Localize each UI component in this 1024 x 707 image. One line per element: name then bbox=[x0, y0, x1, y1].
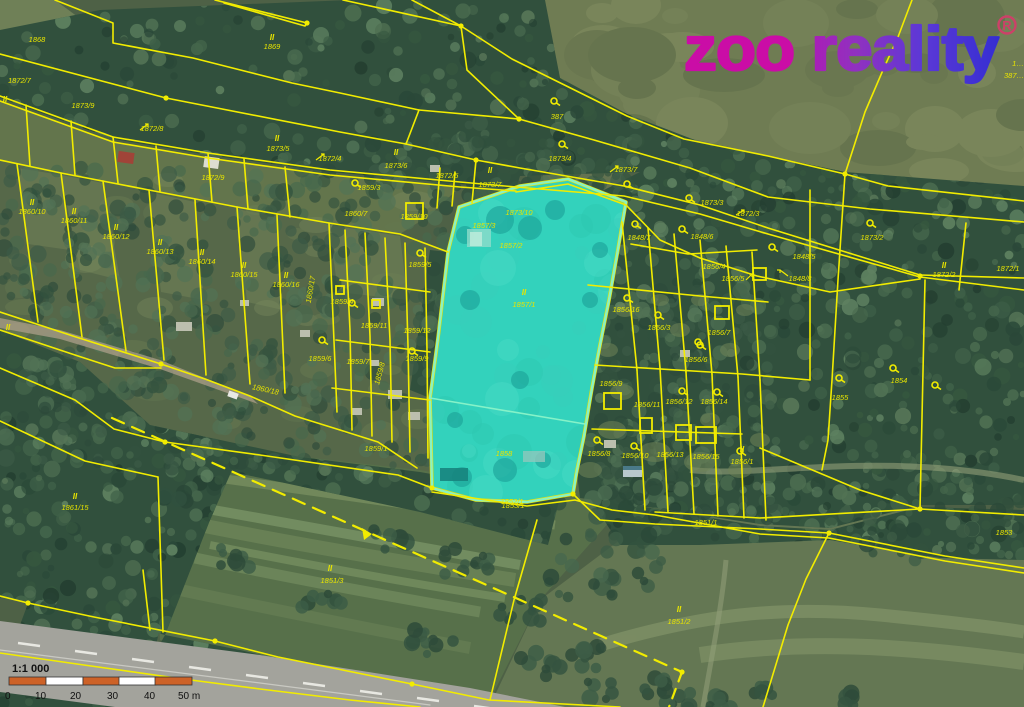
svg-text:1857/1: 1857/1 bbox=[513, 300, 536, 309]
svg-text:1860/14: 1860/14 bbox=[188, 257, 215, 266]
svg-text:1851/1: 1851/1 bbox=[695, 518, 718, 527]
svg-text:1860/7: 1860/7 bbox=[345, 209, 369, 218]
svg-text:1859/3: 1859/3 bbox=[358, 183, 382, 192]
svg-text:1869: 1869 bbox=[264, 42, 282, 51]
svg-text:1848/6: 1848/6 bbox=[691, 232, 715, 241]
svg-text:1855: 1855 bbox=[832, 393, 850, 402]
svg-text:II: II bbox=[284, 271, 289, 280]
svg-text:1856/15: 1856/15 bbox=[692, 452, 720, 461]
svg-text:II: II bbox=[328, 564, 333, 573]
svg-text:1856/16: 1856/16 bbox=[612, 305, 640, 314]
svg-text:1872/8: 1872/8 bbox=[141, 124, 165, 133]
svg-text:1857/3: 1857/3 bbox=[473, 221, 497, 230]
svg-text:1856/5: 1856/5 bbox=[722, 274, 746, 283]
svg-text:II: II bbox=[114, 223, 119, 232]
svg-text:1856/12: 1856/12 bbox=[665, 397, 693, 406]
svg-text:II: II bbox=[30, 198, 35, 207]
svg-text:1873/2: 1873/2 bbox=[861, 233, 885, 242]
svg-text:1854: 1854 bbox=[891, 376, 908, 385]
svg-text:1872/5: 1872/5 bbox=[436, 171, 460, 180]
svg-text:II: II bbox=[242, 261, 247, 270]
svg-text:1860/12: 1860/12 bbox=[102, 232, 130, 241]
svg-text:1860/15: 1860/15 bbox=[230, 270, 258, 279]
svg-text:1856/14: 1856/14 bbox=[700, 397, 727, 406]
svg-text:50 m: 50 m bbox=[178, 691, 200, 702]
svg-text:1848/8: 1848/8 bbox=[789, 274, 813, 283]
svg-text:1860/16: 1860/16 bbox=[272, 280, 300, 289]
svg-text:1856/9: 1856/9 bbox=[600, 379, 624, 388]
svg-text:II: II bbox=[6, 323, 11, 332]
svg-text:1859/7: 1859/7 bbox=[347, 357, 371, 366]
svg-text:40: 40 bbox=[144, 691, 156, 702]
svg-text:1860/11: 1860/11 bbox=[61, 216, 88, 225]
svg-text:1873/6: 1873/6 bbox=[385, 161, 409, 170]
svg-text:1860/13: 1860/13 bbox=[146, 247, 174, 256]
svg-text:II: II bbox=[488, 166, 493, 175]
svg-text:1848/7: 1848/7 bbox=[628, 233, 652, 242]
svg-text:II: II bbox=[73, 492, 78, 501]
svg-text:II: II bbox=[942, 261, 947, 270]
svg-text:1872/9: 1872/9 bbox=[202, 173, 226, 182]
svg-text:zoo reality: zoo reality bbox=[684, 15, 1000, 84]
svg-text:30: 30 bbox=[107, 691, 119, 702]
svg-text:1:1 000: 1:1 000 bbox=[12, 663, 49, 675]
svg-text:20: 20 bbox=[70, 691, 82, 702]
svg-text:1859/6: 1859/6 bbox=[309, 354, 333, 363]
svg-text:1848/5: 1848/5 bbox=[793, 252, 817, 261]
svg-text:II: II bbox=[200, 248, 205, 257]
svg-text:1856/4: 1856/4 bbox=[703, 262, 726, 271]
svg-text:1873/7: 1873/7 bbox=[479, 180, 503, 189]
svg-text:II: II bbox=[394, 148, 399, 157]
svg-text:1873/9: 1873/9 bbox=[72, 101, 96, 110]
svg-text:0: 0 bbox=[5, 691, 11, 702]
svg-text:1860/10: 1860/10 bbox=[18, 207, 46, 216]
svg-text:1859/1: 1859/1 bbox=[365, 444, 388, 453]
svg-text:1873/3: 1873/3 bbox=[701, 198, 725, 207]
svg-text:1856/8: 1856/8 bbox=[588, 449, 612, 458]
svg-text:1…: 1… bbox=[1012, 59, 1024, 68]
svg-text:1872/3: 1872/3 bbox=[737, 209, 761, 218]
svg-text:II: II bbox=[158, 238, 163, 247]
svg-text:II: II bbox=[3, 95, 8, 104]
svg-text:1873/5: 1873/5 bbox=[267, 144, 291, 153]
svg-text:1856/7: 1856/7 bbox=[708, 328, 732, 337]
svg-text:1859/5: 1859/5 bbox=[409, 260, 433, 269]
svg-text:1851/3: 1851/3 bbox=[321, 576, 345, 585]
svg-text:1859/12: 1859/12 bbox=[403, 326, 431, 335]
svg-text:1856/1: 1856/1 bbox=[731, 457, 754, 466]
svg-text:II: II bbox=[522, 288, 527, 297]
svg-text:1851/2: 1851/2 bbox=[668, 617, 692, 626]
svg-text:1861/15: 1861/15 bbox=[61, 503, 89, 512]
svg-text:10: 10 bbox=[35, 691, 47, 702]
svg-text:1858: 1858 bbox=[496, 449, 514, 458]
svg-text:II: II bbox=[270, 33, 275, 42]
svg-text:1873/4: 1873/4 bbox=[549, 154, 572, 163]
svg-text:1856/3: 1856/3 bbox=[648, 323, 672, 332]
svg-text:R: R bbox=[1002, 18, 1012, 33]
svg-text:1856/13: 1856/13 bbox=[656, 450, 684, 459]
svg-text:387…: 387… bbox=[1004, 71, 1024, 80]
svg-text:1859/11: 1859/11 bbox=[361, 321, 388, 330]
svg-text:II: II bbox=[275, 134, 280, 143]
svg-text:1873/10: 1873/10 bbox=[505, 208, 533, 217]
svg-text:1853/1: 1853/1 bbox=[502, 501, 525, 510]
svg-text:1853: 1853 bbox=[996, 528, 1014, 537]
svg-text:1856/6: 1856/6 bbox=[685, 355, 709, 364]
svg-text:1872/7: 1872/7 bbox=[8, 76, 32, 85]
svg-text:1857/2: 1857/2 bbox=[500, 241, 524, 250]
svg-text:II: II bbox=[72, 207, 77, 216]
svg-text:II: II bbox=[677, 605, 682, 614]
svg-text:1856/11: 1856/11 bbox=[634, 400, 661, 409]
svg-text:1856/10: 1856/10 bbox=[621, 451, 649, 460]
svg-text:1872/1: 1872/1 bbox=[997, 264, 1020, 273]
svg-text:1872/2: 1872/2 bbox=[933, 270, 957, 279]
svg-text:1868: 1868 bbox=[29, 35, 47, 44]
svg-text:387: 387 bbox=[551, 112, 564, 121]
